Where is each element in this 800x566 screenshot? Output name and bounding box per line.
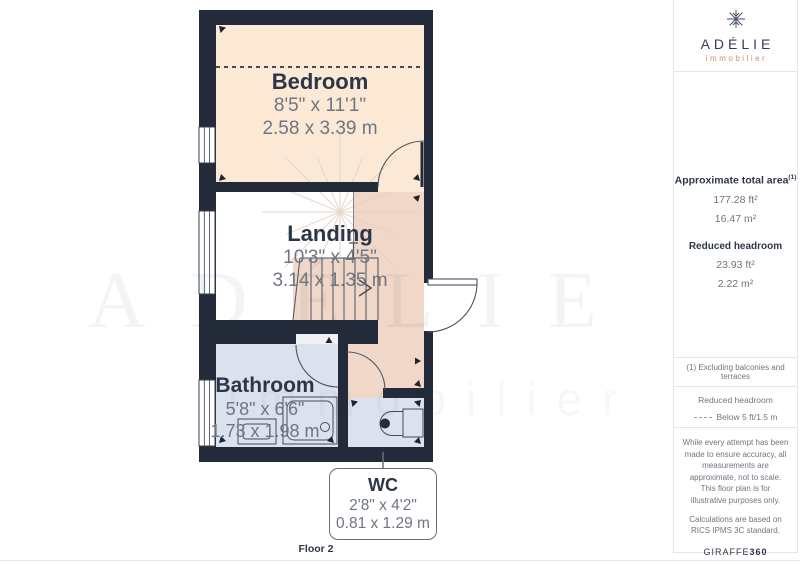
legend-item: Below 5 ft/1.5 m [717, 412, 778, 422]
room-dimensions-imperial: 5'8" x 6'6" [186, 399, 344, 420]
room-name: Bedroom [216, 69, 424, 94]
room-dimensions-metric: 0.81 x 1.29 m [330, 515, 436, 534]
footnote-marker: (1) [788, 174, 796, 181]
wc-callout: WC 2'8" x 4'2" 0.81 x 1.29 m [329, 468, 437, 540]
disclaimer: While every attempt has been made to ens… [674, 428, 797, 559]
room-dimensions-metric: 1.73 x 1.98 m [186, 421, 344, 442]
room-dimensions-imperial: 8'5" x 11'1" [216, 95, 424, 117]
legend-title: Reduced headroom [674, 395, 797, 405]
reduced-headroom-metric: 2.22 m² [674, 278, 797, 290]
reduced-headroom-title: Reduced headroom [674, 241, 797, 252]
disclaimer-text-1: While every attempt has been made to ens… [682, 437, 789, 507]
room-name: WC [330, 475, 436, 497]
room-dimensions-imperial: 2'8" x 4'2" [330, 497, 436, 516]
snowflake-logo-icon [725, 8, 747, 30]
total-area-imperial: 177.28 ft² [674, 194, 797, 206]
giraffe-brand-text: GIRAFFE [703, 547, 749, 557]
room-name: Bathroom [186, 374, 344, 398]
bedroom-window [199, 127, 215, 163]
landing-label: Landing 10'3" x 4'5" 3.14 x 1.35 m [230, 221, 430, 292]
total-area-label: Approximate total area [675, 175, 789, 187]
disclaimer-text-2: Calculations are based on RICS IPMS 3C s… [682, 514, 789, 537]
footnote: (1) Excluding balconies and terraces [674, 358, 797, 387]
room-name: Landing [230, 221, 430, 246]
bedroom-door-opening [378, 182, 424, 192]
page-bottom-divider [0, 560, 800, 561]
reduced-headroom-imperial: 23.93 ft² [674, 259, 797, 271]
floor-label: Floor 2 [199, 543, 433, 555]
giraffe-brand-suffix: 360 [749, 547, 767, 557]
room-dimensions-metric: 3.14 x 1.35 m [230, 270, 430, 292]
legend: Reduced headroom Below 5 ft/1.5 m [674, 387, 797, 428]
brand-name: ADÉLIE [674, 36, 797, 52]
dashed-line-swatch [694, 417, 712, 418]
room-dimensions-imperial: 10'3" x 4'5" [230, 247, 430, 269]
logo-block: ADÉLIE immobilier [674, 0, 797, 72]
giraffe360-brand: GIRAFFE360 [682, 546, 789, 559]
total-area-title: Approximate total area(1) [674, 174, 797, 187]
total-area-metric: 16.47 m² [674, 213, 797, 225]
bedroom-label: Bedroom 8'5" x 11'1" 2.58 x 3.39 m [216, 69, 424, 140]
brand-tagline: immobilier [674, 54, 797, 63]
bathroom-label: Bathroom 5'8" x 6'6" 1.73 x 1.98 m [186, 374, 344, 442]
sidebar: ADÉLIE immobilier Approximate total area… [673, 0, 798, 553]
room-dimensions-metric: 2.58 x 3.39 m [216, 118, 424, 140]
area-summary: Approximate total area(1) 177.28 ft² 16.… [674, 72, 797, 358]
